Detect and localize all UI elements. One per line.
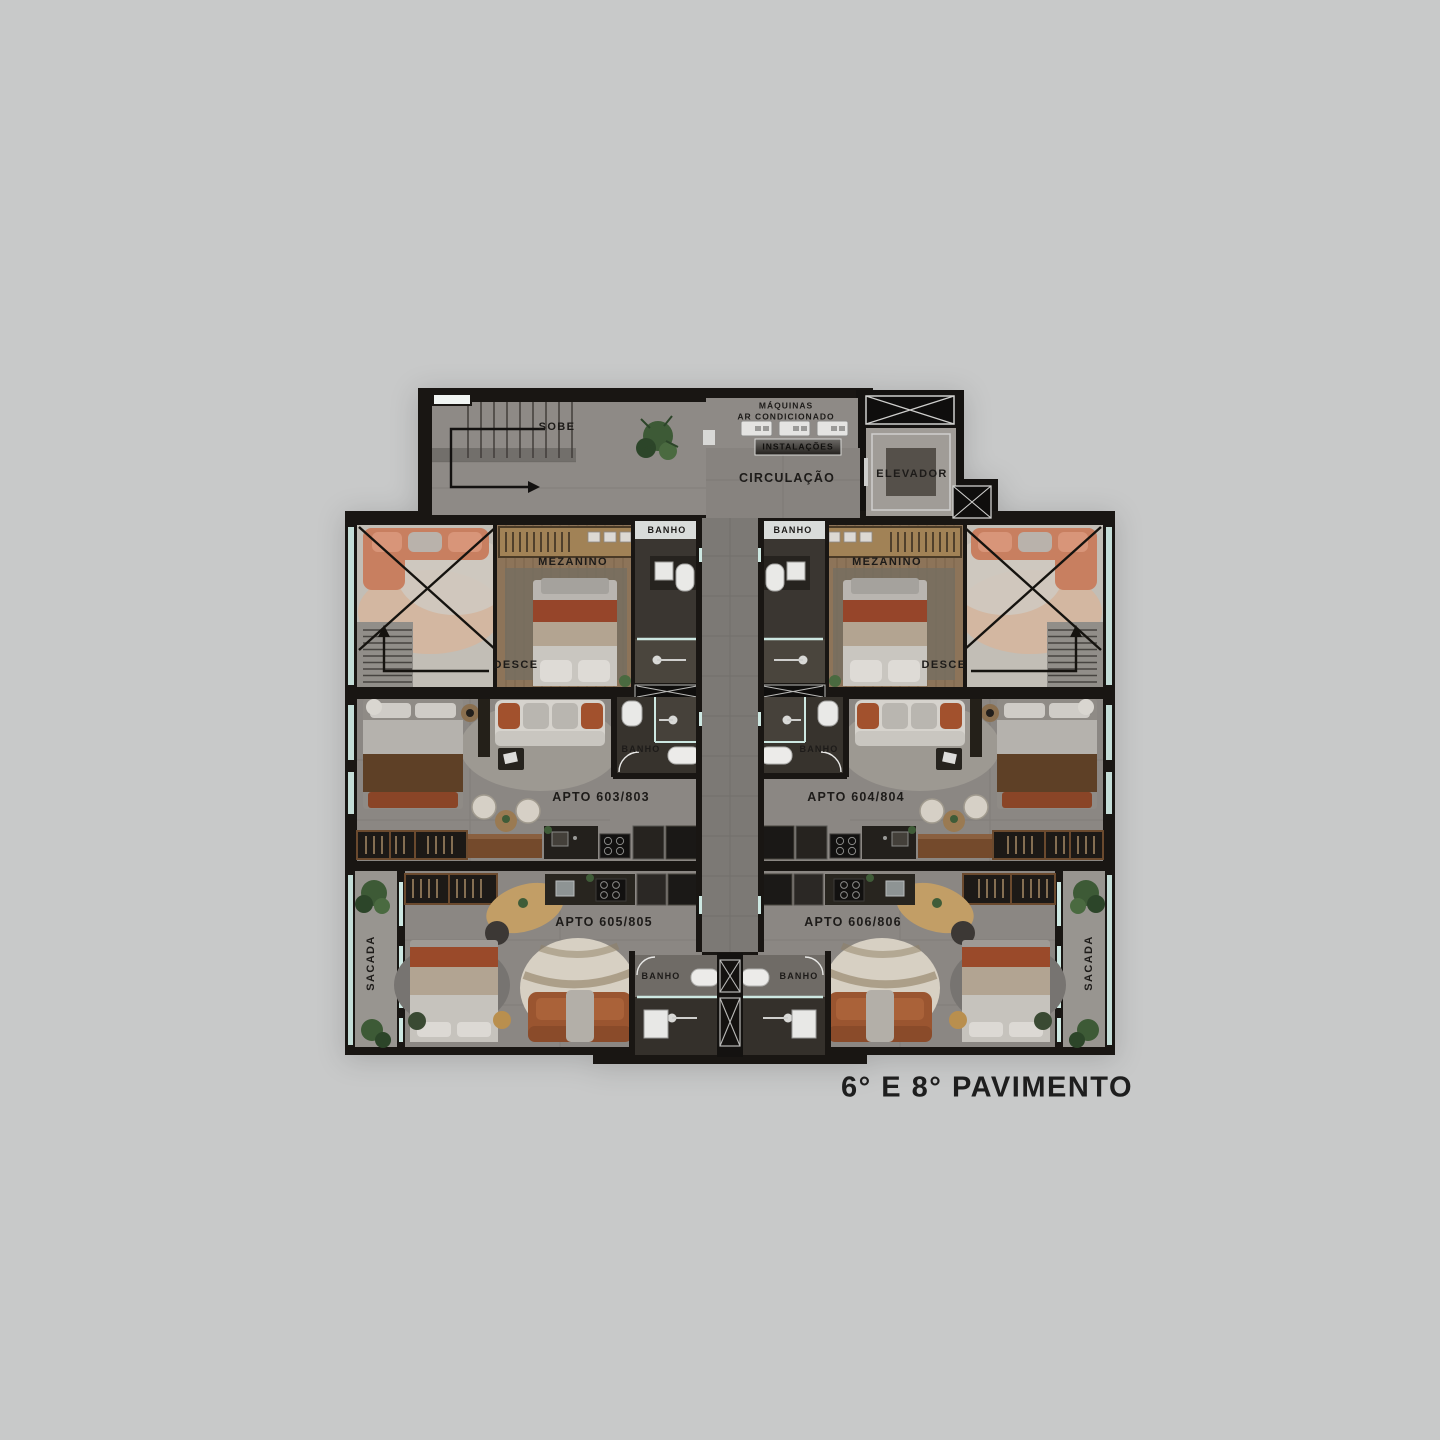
machines-room: [703, 398, 860, 518]
floor-plan-page: SOBE MÁQUINAS AR CONDICIONADO INSTALAÇÕE…: [0, 0, 1440, 1440]
elevator-block: [864, 396, 991, 518]
central-corridor: [696, 518, 764, 952]
bottom-shaft: [717, 953, 743, 1057]
stair-hall: [432, 394, 710, 515]
floor-plan-rendering: [0, 0, 1440, 1440]
